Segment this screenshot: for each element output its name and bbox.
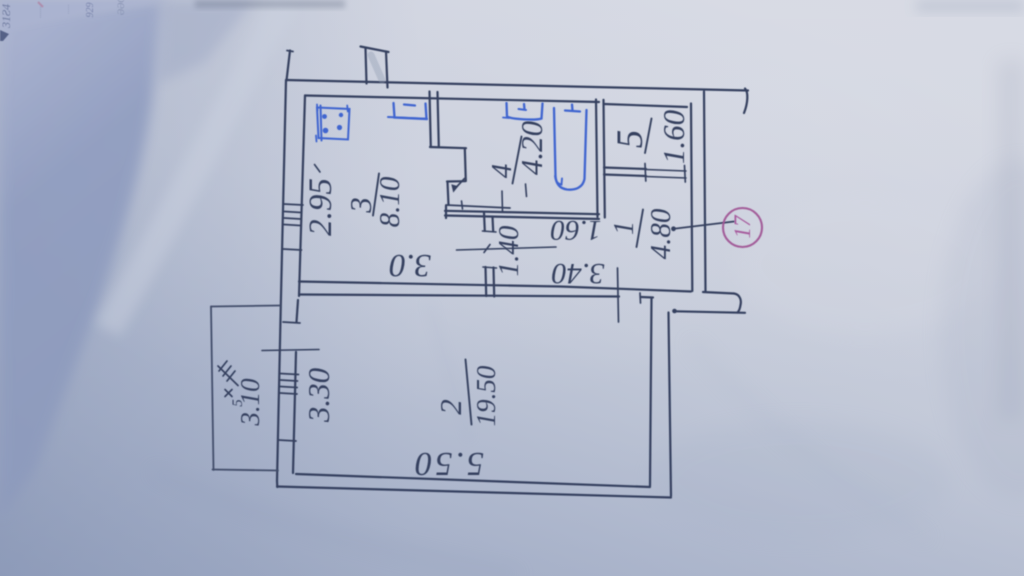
- svg-text:3.0: 3.0: [389, 247, 432, 283]
- svg-text:3.40: 3.40: [552, 257, 606, 290]
- svg-text:1.60: 1.60: [656, 109, 691, 164]
- svg-text:8.10: 8.10: [374, 176, 406, 227]
- svg-text:5: 5: [610, 130, 651, 149]
- svg-text:31Ƨ4: 31Ƨ4: [0, 4, 13, 29]
- svg-text:4.20: 4.20: [514, 120, 549, 175]
- svg-text:5.50: 5.50: [412, 445, 484, 482]
- svg-text:929: 929: [85, 3, 96, 18]
- svg-text:.....: .....: [62, 4, 71, 14]
- svg-text:2.95: 2.95: [303, 178, 339, 236]
- svg-text:1.40: 1.40: [493, 225, 525, 276]
- svg-text:3: 3: [343, 197, 378, 214]
- svg-text:2: 2: [433, 399, 468, 415]
- svg-text:......: ......: [34, 6, 43, 18]
- svg-text:ƏƏC: ƏƏC: [116, 0, 126, 15]
- svg-text:3.30: 3.30: [301, 367, 336, 423]
- svg-text:19.50: 19.50: [471, 365, 501, 426]
- svg-text:17: 17: [730, 214, 755, 239]
- svg-text:5: 5: [230, 399, 246, 407]
- svg-text:1.60: 1.60: [550, 214, 601, 246]
- svg-text:4.80: 4.80: [645, 208, 677, 259]
- svg-text:1: 1: [609, 221, 640, 235]
